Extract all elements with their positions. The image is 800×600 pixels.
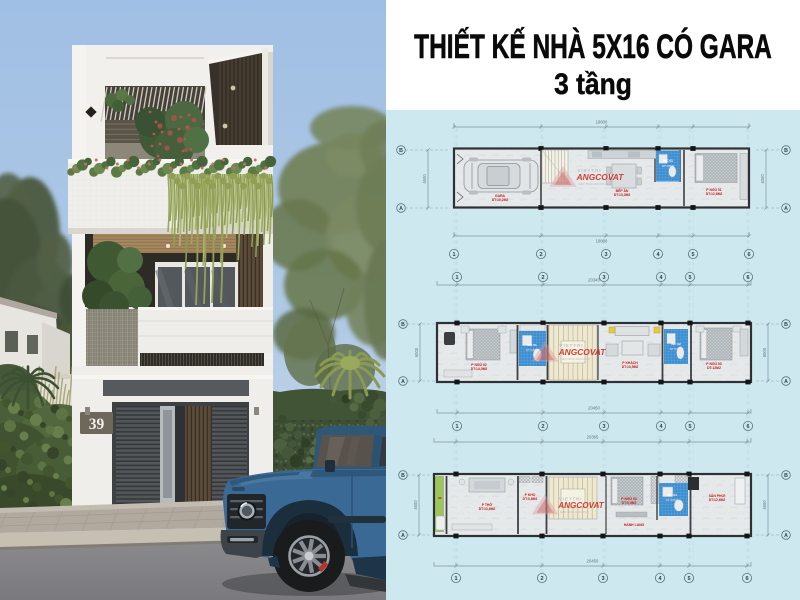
svg-text:DT:13,6M2: DT:13,6M2 bbox=[479, 507, 496, 511]
svg-text:4500: 4500 bbox=[422, 174, 427, 184]
svg-text:2: 2 bbox=[541, 424, 544, 430]
svg-text:6000: 6000 bbox=[414, 347, 419, 357]
svg-text:DT:3,0M2: DT:3,0M2 bbox=[670, 347, 682, 351]
svg-text:KIEN TRUC ANGCOVAT: KIEN TRUC ANGCOVAT bbox=[560, 510, 590, 514]
svg-text:A: A bbox=[784, 206, 788, 212]
svg-text:4600: 4600 bbox=[762, 500, 767, 510]
svg-text:A: A bbox=[401, 533, 405, 539]
svg-text:3: 3 bbox=[602, 275, 605, 281]
svg-text:5: 5 bbox=[688, 424, 691, 430]
svg-text:ANGCOVAT: ANGCOVAT bbox=[558, 347, 607, 357]
svg-text:6: 6 bbox=[746, 424, 749, 430]
svg-text:WC 01: WC 01 bbox=[663, 159, 673, 163]
svg-text:A: A bbox=[784, 533, 788, 539]
svg-text:20340: 20340 bbox=[588, 278, 600, 283]
svg-text:4000: 4000 bbox=[760, 174, 765, 184]
svg-text:20450: 20450 bbox=[588, 406, 600, 411]
svg-text:4600: 4600 bbox=[413, 500, 418, 510]
svg-text:1: 1 bbox=[454, 576, 457, 582]
svg-text:4: 4 bbox=[659, 424, 663, 430]
svg-text:KIEN TRUC ANGCOVAT: KIEN TRUC ANGCOVAT bbox=[560, 357, 590, 361]
svg-text:ĐE: ĐE bbox=[438, 496, 442, 500]
svg-text:1: 1 bbox=[452, 252, 455, 258]
svg-text:2: 2 bbox=[540, 576, 543, 582]
svg-text:3: 3 bbox=[601, 576, 604, 582]
svg-text:A: A bbox=[399, 206, 403, 212]
svg-text:B: B bbox=[401, 473, 405, 479]
svg-text:KIEN TRUC ANGCOVAT: KIEN TRUC ANGCOVAT bbox=[578, 182, 608, 186]
svg-text:A: A bbox=[401, 379, 405, 385]
svg-text:2: 2 bbox=[539, 252, 542, 258]
svg-text:B: B bbox=[784, 322, 788, 328]
svg-text:5: 5 bbox=[691, 252, 694, 258]
svg-text:DT:12M2: DT:12M2 bbox=[707, 366, 721, 370]
svg-text:B: B bbox=[784, 148, 788, 154]
svg-text:2: 2 bbox=[541, 275, 544, 281]
svg-text:DT:3,6M2: DT:3,6M2 bbox=[523, 497, 538, 501]
svg-text:DT:12,6M2: DT:12,6M2 bbox=[706, 192, 723, 196]
svg-text:3: 3 bbox=[602, 424, 605, 430]
svg-text:DT:13,3M2: DT:13,3M2 bbox=[614, 193, 631, 197]
svg-text:6: 6 bbox=[745, 576, 748, 582]
svg-text:B: B bbox=[784, 473, 788, 479]
svg-text:DT:14,0M2: DT:14,0M2 bbox=[471, 367, 488, 371]
svg-text:6000: 6000 bbox=[762, 347, 767, 357]
svg-text:1: 1 bbox=[455, 275, 458, 281]
svg-text:4: 4 bbox=[659, 275, 663, 281]
svg-text:WC 02: WC 02 bbox=[671, 342, 681, 346]
svg-text:DT:13,5M2: DT:13,5M2 bbox=[622, 365, 639, 369]
svg-text:DT:3,8M2: DT:3,8M2 bbox=[666, 498, 678, 502]
svg-text:3: 3 bbox=[604, 252, 607, 258]
svg-text:DT:3,8M2: DT:3,8M2 bbox=[526, 348, 538, 352]
svg-text:DT:9,0M2: DT:9,0M2 bbox=[622, 501, 637, 505]
svg-text:ANGCOVAT: ANGCOVAT bbox=[576, 172, 625, 182]
svg-text:DT:12,6M2: DT:12,6M2 bbox=[709, 498, 726, 502]
svg-text:20450: 20450 bbox=[587, 559, 599, 564]
svg-text:HÀNH LANG: HÀNH LANG bbox=[624, 522, 645, 527]
svg-text:5: 5 bbox=[688, 275, 691, 281]
svg-text:5: 5 bbox=[687, 576, 690, 582]
svg-text:B: B bbox=[399, 148, 403, 154]
svg-text:DT:19,2M2: DT:19,2M2 bbox=[492, 198, 509, 202]
svg-text:WC 01: WC 01 bbox=[527, 343, 537, 347]
svg-text:A: A bbox=[784, 379, 788, 385]
svg-text:6: 6 bbox=[746, 275, 749, 281]
svg-text:B: B bbox=[401, 322, 405, 328]
svg-text:1: 1 bbox=[455, 424, 458, 430]
svg-text:39: 39 bbox=[89, 416, 105, 433]
svg-text:WC 04: WC 04 bbox=[667, 493, 677, 497]
svg-text:DT:3,6M2: DT:3,6M2 bbox=[662, 164, 674, 168]
svg-text:ANGCOVAT: ANGCOVAT bbox=[557, 501, 605, 510]
svg-text:6: 6 bbox=[747, 252, 750, 258]
svg-text:19800: 19800 bbox=[596, 120, 608, 125]
svg-text:20365: 20365 bbox=[587, 435, 599, 440]
svg-text:4: 4 bbox=[658, 576, 662, 582]
svg-text:19800: 19800 bbox=[596, 239, 608, 244]
